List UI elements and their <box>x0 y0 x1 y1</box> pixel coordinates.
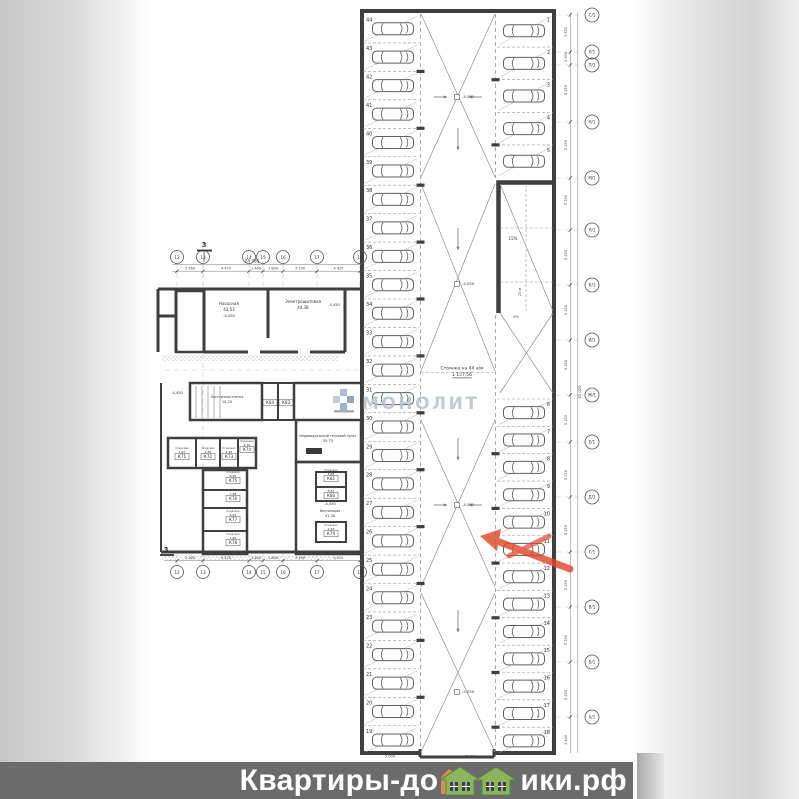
listing-floor-plan-image: 15% 23 м 9% Стоянка на 44 а/м 1 157,56 <box>0 0 799 799</box>
svg-text:5 250: 5 250 <box>564 580 568 590</box>
svg-text:6: 6 <box>547 402 550 408</box>
svg-text:К84: К84 <box>266 400 275 405</box>
svg-text:5 250: 5 250 <box>564 140 568 150</box>
svg-text:14: 14 <box>544 621 550 627</box>
svg-text:44,38: 44,38 <box>297 305 309 310</box>
svg-text:10: 10 <box>544 511 550 517</box>
svg-text:5 000: 5 000 <box>385 755 395 759</box>
ramp-slope2-label: 9% <box>513 315 519 319</box>
svg-text:9: 9 <box>547 484 550 490</box>
svg-text:3 440: 3 440 <box>564 735 568 745</box>
svg-text:5 250: 5 250 <box>564 85 568 95</box>
svg-text:5 250: 5 250 <box>564 305 568 315</box>
svg-text:34: 34 <box>366 302 372 308</box>
svg-text:К74: К74 <box>243 447 252 452</box>
svg-text:К75: К75 <box>229 478 238 483</box>
svg-text:-4,450: -4,450 <box>328 303 340 307</box>
svg-text:24 765: 24 765 <box>245 259 260 264</box>
parking-stalls-right-top: 12345 <box>497 17 553 176</box>
svg-text:16: 16 <box>280 570 286 575</box>
svg-text:3: 3 <box>547 83 550 89</box>
svg-text:3: 3 <box>202 241 207 249</box>
footer-site-prefix: Квартиры-до <box>240 766 439 796</box>
svg-text:32: 32 <box>366 359 372 365</box>
parking-caption: Стоянка на 44 а/м <box>440 366 483 372</box>
svg-text:25: 25 <box>366 558 372 564</box>
svg-text:К72: К72 <box>204 454 213 459</box>
svg-text:3 190: 3 190 <box>295 556 305 560</box>
svg-text:4 470: 4 470 <box>221 556 231 560</box>
svg-text:39: 39 <box>366 160 372 166</box>
svg-text:1 460: 1 460 <box>251 556 261 560</box>
svg-text:15: 15 <box>544 648 550 654</box>
svg-text:5 250: 5 250 <box>564 360 568 370</box>
svg-text:1 460: 1 460 <box>251 267 261 271</box>
svg-text:13: 13 <box>200 255 206 260</box>
svg-text:55,75: 55,75 <box>323 439 333 443</box>
svg-text:Б/1: Б/1 <box>589 660 596 665</box>
svg-text:И/1: И/1 <box>589 338 596 343</box>
svg-text:29: 29 <box>366 444 372 450</box>
svg-text:12: 12 <box>174 255 180 260</box>
svg-text:5 250: 5 250 <box>564 415 568 425</box>
svg-text:С/1: С/1 <box>589 13 596 18</box>
svg-text:13: 13 <box>544 593 550 599</box>
svg-text:3 525: 3 525 <box>564 27 568 37</box>
svg-text:43,53: 43,53 <box>223 307 235 312</box>
svg-text:2 260: 2 260 <box>185 556 195 560</box>
svg-text:-4,050: -4,050 <box>462 689 475 694</box>
svg-text:К76: К76 <box>229 496 238 501</box>
svg-text:К80: К80 <box>327 493 336 498</box>
svg-text:38: 38 <box>366 188 372 194</box>
ramp-slope-label: 15% <box>509 236 518 241</box>
parking-stalls-right-bottom: 6789101112131415161718 <box>497 399 553 753</box>
svg-text:35: 35 <box>366 274 372 280</box>
svg-text:41,34: 41,34 <box>325 514 336 518</box>
svg-text:Индивидуальный тепловой пункт: Индивидуальный тепловой пункт <box>300 434 357 438</box>
svg-text:5 250: 5 250 <box>564 525 568 535</box>
photo-shadow-block <box>637 753 664 799</box>
svg-text:15: 15 <box>260 255 266 260</box>
svg-text:8: 8 <box>547 457 550 463</box>
equipment-block <box>306 448 322 454</box>
svg-text:42: 42 <box>366 74 372 80</box>
svg-text:-4,450: -4,450 <box>223 314 235 318</box>
svg-text:К79: К79 <box>327 531 336 536</box>
footer-site-suffix: ики.рф <box>520 766 627 796</box>
svg-text:Н/1: Н/1 <box>589 120 596 125</box>
svg-text:К83: К83 <box>282 400 291 405</box>
svg-text:М/1: М/1 <box>588 176 596 181</box>
svg-text:7 400: 7 400 <box>465 755 475 759</box>
svg-text:43: 43 <box>366 46 372 52</box>
room-labels: Насосная43,53Электрощитовая44,38Индивиду… <box>171 299 356 546</box>
svg-text:3: 3 <box>164 546 169 554</box>
svg-text:16: 16 <box>280 255 286 260</box>
svg-text:1 800: 1 800 <box>268 556 278 560</box>
svg-text:Электрощитовая: Электрощитовая <box>285 299 321 304</box>
svg-text:5 250: 5 250 <box>564 470 568 480</box>
svg-text:24: 24 <box>366 587 372 593</box>
svg-text:18: 18 <box>357 255 363 260</box>
svg-text:К73: К73 <box>225 454 234 459</box>
svg-text:К78: К78 <box>229 540 238 545</box>
svg-text:Ж/1: Ж/1 <box>588 393 597 398</box>
svg-text:5 250: 5 250 <box>564 195 568 205</box>
svg-text:5 250: 5 250 <box>564 690 568 700</box>
svg-text:К77: К77 <box>229 517 238 522</box>
svg-text:1: 1 <box>547 18 550 24</box>
svg-text:28: 28 <box>366 473 372 479</box>
svg-text:К81: К81 <box>327 476 336 481</box>
watermark-logo <box>333 389 354 413</box>
houses-logo-icon <box>441 764 517 796</box>
svg-text:4 470: 4 470 <box>221 267 231 271</box>
svg-text:1 600: 1 600 <box>564 52 568 62</box>
svg-text:4: 4 <box>547 115 550 121</box>
svg-text:23: 23 <box>366 615 372 621</box>
svg-text:20: 20 <box>366 700 372 706</box>
svg-text:5 250: 5 250 <box>564 635 568 645</box>
svg-text:А/1: А/1 <box>589 715 596 720</box>
svg-text:41: 41 <box>366 103 372 109</box>
svg-text:22: 22 <box>366 643 372 649</box>
floor-plan-canvas: 15% 23 м 9% Стоянка на 44 а/м 1 157,56 <box>0 0 799 799</box>
svg-text:26: 26 <box>366 530 372 536</box>
svg-text:21: 21 <box>366 672 372 678</box>
svg-text:Л/1: Л/1 <box>589 228 596 233</box>
svg-text:14: 14 <box>246 570 252 575</box>
svg-text:18: 18 <box>544 730 550 736</box>
svg-text:-4,050: -4,050 <box>462 281 475 286</box>
svg-text:2 260: 2 260 <box>185 267 195 271</box>
svg-text:П/1: П/1 <box>589 63 596 68</box>
svg-text:Лестничная клетка: Лестничная клетка <box>211 395 244 399</box>
basement-wing-walls <box>158 289 361 560</box>
svg-text:40: 40 <box>366 131 372 137</box>
svg-text:16: 16 <box>544 676 550 682</box>
svg-text:15,25: 15,25 <box>222 400 232 404</box>
svg-text:33: 33 <box>366 330 372 336</box>
svg-text:Вентиляция: Вентиляция <box>320 509 340 513</box>
svg-text:В/1: В/1 <box>589 605 596 610</box>
svg-text:19: 19 <box>366 729 372 735</box>
svg-text:4 425: 4 425 <box>333 556 343 560</box>
hatched-shaft <box>176 291 204 352</box>
ramp-length-label: 23 м <box>518 288 522 297</box>
svg-text:12: 12 <box>544 566 550 572</box>
svg-text:5: 5 <box>547 148 550 154</box>
watermark-text: МОНОЛИТ <box>362 394 480 414</box>
svg-text:31: 31 <box>366 387 372 393</box>
svg-text:-4,450: -4,450 <box>171 391 183 395</box>
svg-text:Д/1: Д/1 <box>588 495 595 500</box>
svg-text:15: 15 <box>260 570 266 575</box>
svg-text:4 425: 4 425 <box>333 267 343 271</box>
svg-text:51 025: 51 025 <box>577 385 582 399</box>
svg-text:36: 36 <box>366 245 372 251</box>
svg-text:-4,450: -4,450 <box>324 502 336 506</box>
svg-text:27: 27 <box>366 501 372 507</box>
svg-text:17: 17 <box>314 570 320 575</box>
svg-text:Г/1: Г/1 <box>589 550 596 555</box>
svg-text:12: 12 <box>174 570 180 575</box>
svg-text:3 190: 3 190 <box>295 267 305 271</box>
svg-text:К/1: К/1 <box>589 283 596 288</box>
svg-text:5 250: 5 250 <box>564 250 568 260</box>
svg-text:7: 7 <box>547 429 550 435</box>
svg-text:Насосная: Насосная <box>219 301 239 306</box>
svg-text:37: 37 <box>366 217 372 223</box>
svg-text:2: 2 <box>547 50 550 56</box>
svg-text:Р/1: Р/1 <box>589 50 596 55</box>
svg-text:13: 13 <box>200 570 206 575</box>
svg-text:17: 17 <box>544 703 550 709</box>
svg-text:30: 30 <box>366 416 372 422</box>
svg-text:17: 17 <box>314 255 320 260</box>
parking-caption-area: 1 157,56 <box>452 372 472 378</box>
svg-text:18: 18 <box>357 570 363 575</box>
svg-text:К71: К71 <box>178 454 187 459</box>
footer-watermark-bar: Квартиры-до ики.рф <box>0 762 633 799</box>
svg-text:Е/1: Е/1 <box>589 440 596 445</box>
svg-text:44: 44 <box>366 18 372 24</box>
svg-text:1 800: 1 800 <box>268 267 278 271</box>
parking-stalls-left-column: 4443424140393837363534333231302928272625… <box>363 17 419 753</box>
